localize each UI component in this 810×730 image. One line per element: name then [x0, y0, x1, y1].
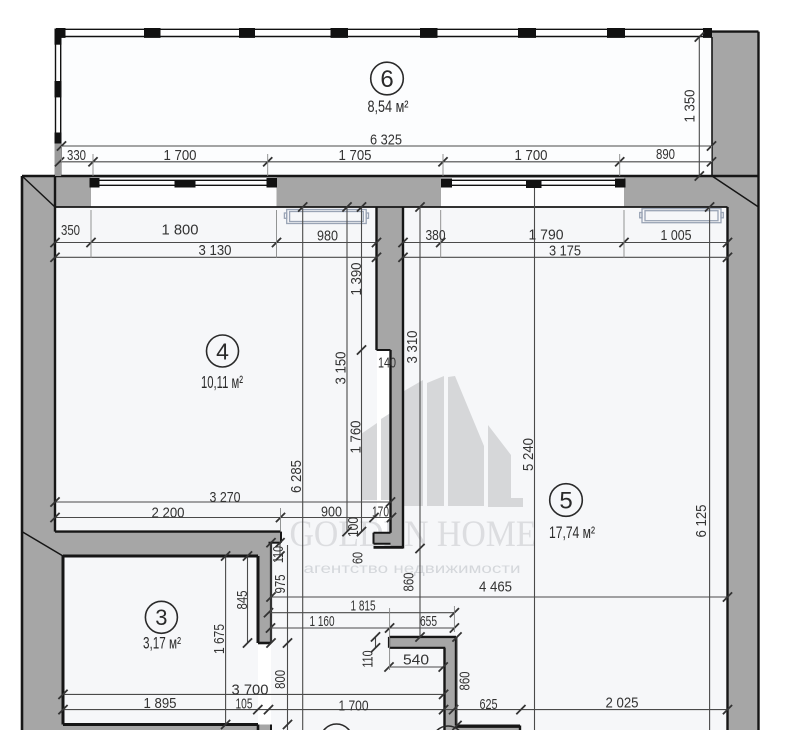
svg-text:100: 100	[345, 517, 362, 537]
svg-text:3: 3	[155, 605, 167, 630]
svg-text:3 150: 3 150	[332, 352, 349, 385]
svg-text:1 800: 1 800	[162, 221, 199, 238]
svg-text:845: 845	[234, 591, 251, 610]
svg-text:8,54 м²: 8,54 м²	[368, 97, 409, 116]
svg-text:1 895: 1 895	[144, 695, 177, 712]
svg-text:6 325: 6 325	[370, 131, 402, 148]
svg-text:3 130: 3 130	[199, 242, 232, 259]
svg-text:1 675: 1 675	[211, 624, 228, 654]
svg-text:170: 170	[372, 503, 389, 520]
svg-text:6 125: 6 125	[693, 505, 710, 538]
svg-text:1 700: 1 700	[339, 697, 369, 714]
svg-text:1 815: 1 815	[351, 597, 376, 614]
svg-text:6: 6	[380, 66, 393, 93]
svg-text:5 240: 5 240	[520, 438, 537, 471]
svg-text:5: 5	[559, 488, 572, 515]
svg-text:980: 980	[317, 227, 338, 244]
svg-text:10,11 м²: 10,11 м²	[201, 372, 243, 392]
svg-text:60: 60	[349, 552, 366, 564]
svg-text:380: 380	[426, 227, 446, 244]
svg-text:1 390: 1 390	[348, 263, 365, 296]
svg-text:330: 330	[67, 147, 86, 164]
svg-text:17,74 м²: 17,74 м²	[549, 523, 595, 542]
svg-text:4 465: 4 465	[479, 578, 512, 595]
svg-text:3 175: 3 175	[549, 242, 581, 259]
svg-text:110: 110	[359, 651, 376, 668]
svg-text:860: 860	[456, 672, 473, 691]
svg-text:3 270: 3 270	[210, 489, 241, 506]
svg-text:625: 625	[480, 696, 498, 713]
svg-text:860: 860	[400, 573, 417, 592]
svg-text:3,17 м²: 3,17 м²	[143, 634, 181, 652]
svg-text:1 700: 1 700	[515, 147, 548, 164]
svg-text:1 760: 1 760	[347, 421, 364, 454]
svg-text:1 705: 1 705	[339, 147, 372, 164]
svg-text:2 200: 2 200	[152, 504, 185, 521]
svg-text:540: 540	[403, 651, 429, 668]
svg-text:800: 800	[272, 670, 289, 689]
svg-text:890: 890	[656, 146, 675, 163]
svg-text:900: 900	[321, 503, 342, 520]
svg-text:140: 140	[378, 354, 396, 371]
svg-text:1 790: 1 790	[529, 226, 564, 243]
svg-text:1 700: 1 700	[164, 147, 197, 164]
svg-text:1 160: 1 160	[310, 613, 335, 630]
svg-text:6 285: 6 285	[288, 460, 305, 493]
svg-text:975: 975	[272, 575, 289, 594]
svg-text:1 005: 1 005	[661, 227, 692, 244]
svg-text:655: 655	[420, 613, 437, 630]
svg-text:110: 110	[270, 546, 287, 563]
svg-text:1 350: 1 350	[681, 90, 698, 123]
svg-text:4: 4	[216, 338, 229, 364]
svg-text:2 025: 2 025	[606, 694, 639, 711]
svg-text:105: 105	[236, 695, 253, 712]
svg-text:350: 350	[61, 222, 80, 239]
svg-text:3 310: 3 310	[404, 331, 421, 364]
